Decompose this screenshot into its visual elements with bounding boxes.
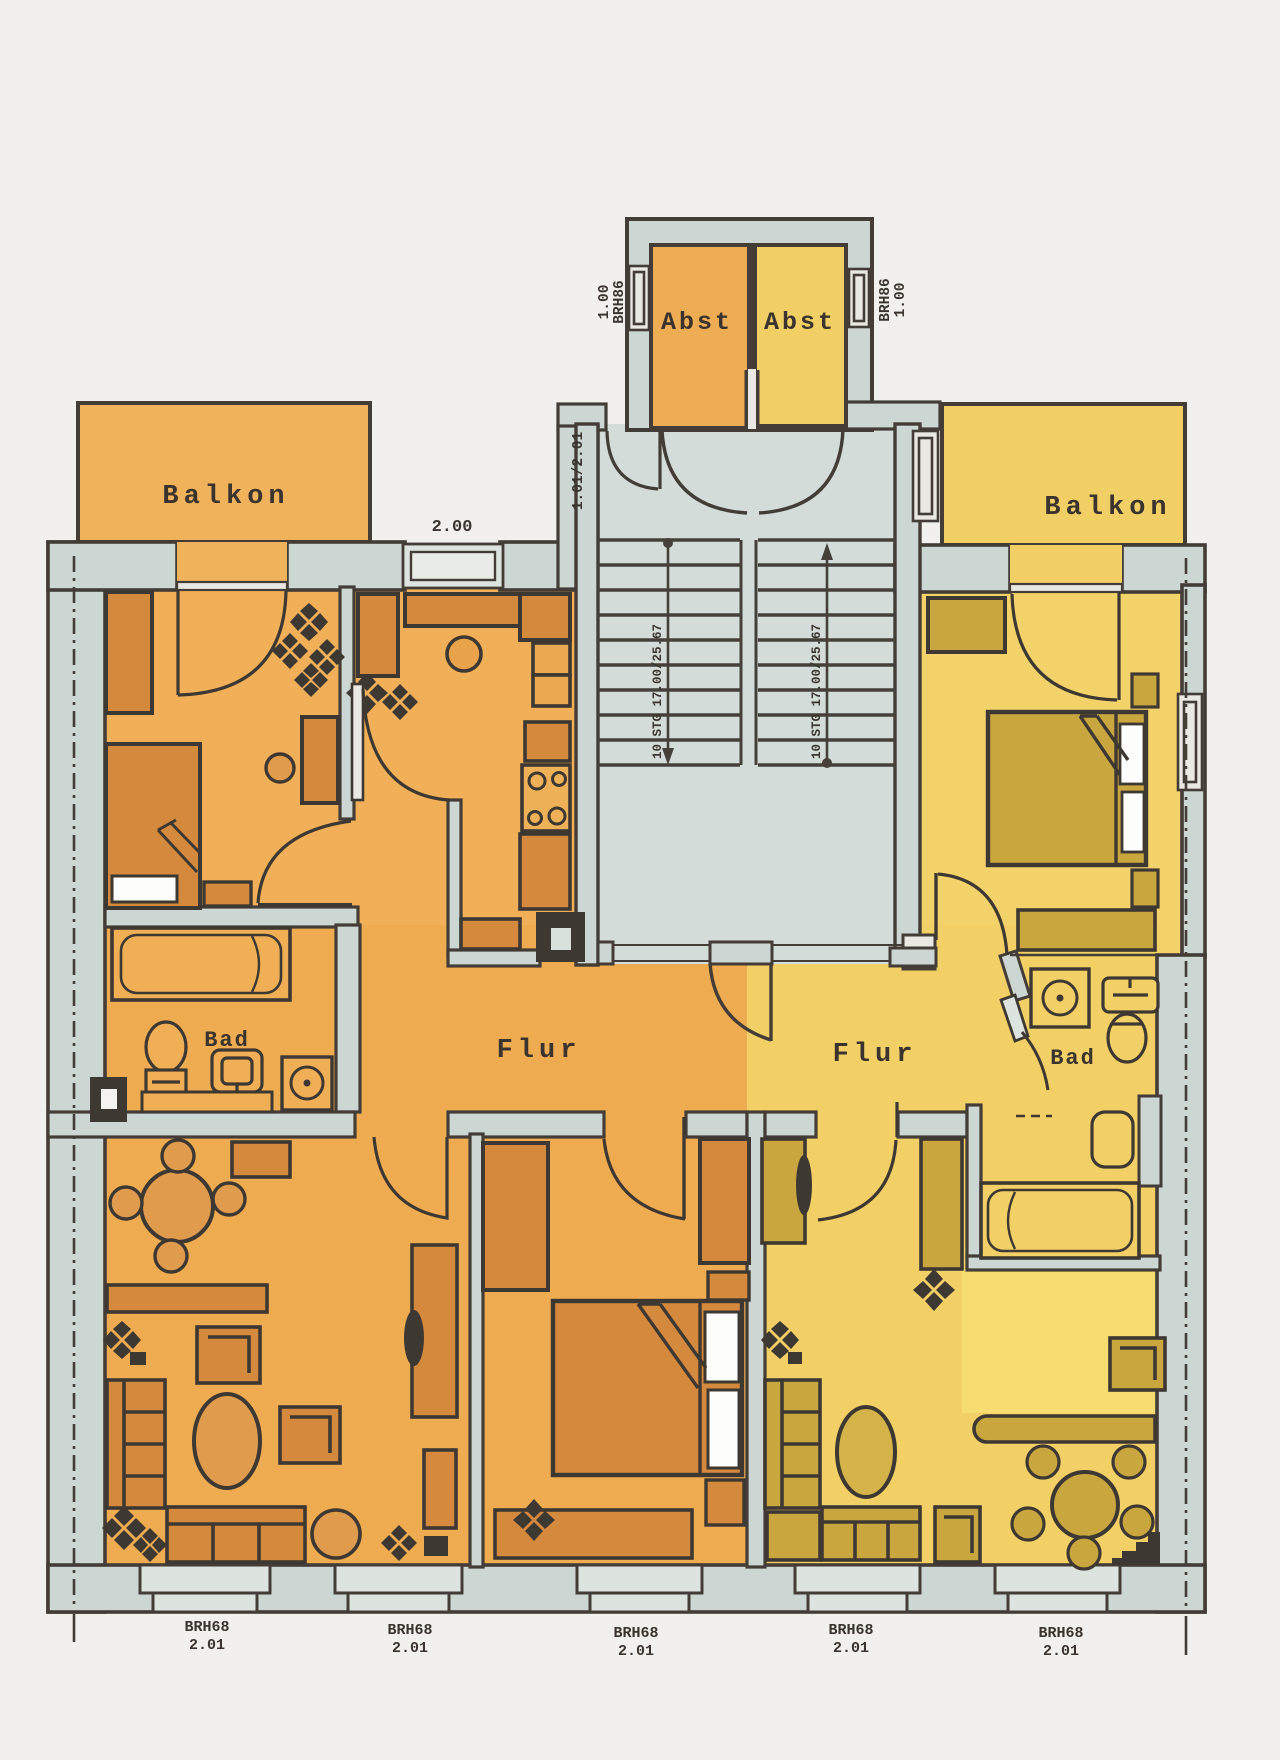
svg-text:BRH68: BRH68 [613,1625,658,1642]
svg-text:Balkon: Balkon [162,482,289,512]
svg-text:10 STG 17.00/25.67: 10 STG 17.00/25.67 [651,624,665,759]
svg-text:BRH86: BRH86 [878,278,894,322]
svg-text:2.01: 2.01 [189,1637,225,1654]
svg-text:1.01/2.01: 1.01/2.01 [571,432,587,511]
svg-text:2.01: 2.01 [618,1643,654,1660]
svg-text:1.00: 1.00 [893,283,909,318]
svg-text:1.00: 1.00 [597,285,613,320]
svg-text:2.00: 2.00 [432,518,473,537]
svg-text:Flur: Flur [833,1040,918,1070]
svg-text:2.01: 2.01 [833,1640,869,1657]
svg-text:BRH68: BRH68 [387,1622,432,1639]
svg-text:BRH68: BRH68 [828,1622,873,1639]
svg-text:Abst: Abst [661,308,733,337]
svg-text:2.01: 2.01 [1043,1643,1079,1660]
svg-text:Bad: Bad [204,1028,250,1053]
svg-text:2.01: 2.01 [392,1640,428,1657]
svg-text:BRH68: BRH68 [184,1619,229,1636]
svg-text:BRH68: BRH68 [1038,1625,1083,1642]
svg-text:Flur: Flur [497,1036,582,1066]
svg-text:Balkon: Balkon [1044,493,1171,523]
svg-text:BRH86: BRH86 [612,280,628,324]
svg-text:10 STG 17.00/25.67: 10 STG 17.00/25.67 [810,624,824,759]
svg-text:Bad: Bad [1050,1046,1096,1071]
svg-text:Abst: Abst [764,308,836,337]
